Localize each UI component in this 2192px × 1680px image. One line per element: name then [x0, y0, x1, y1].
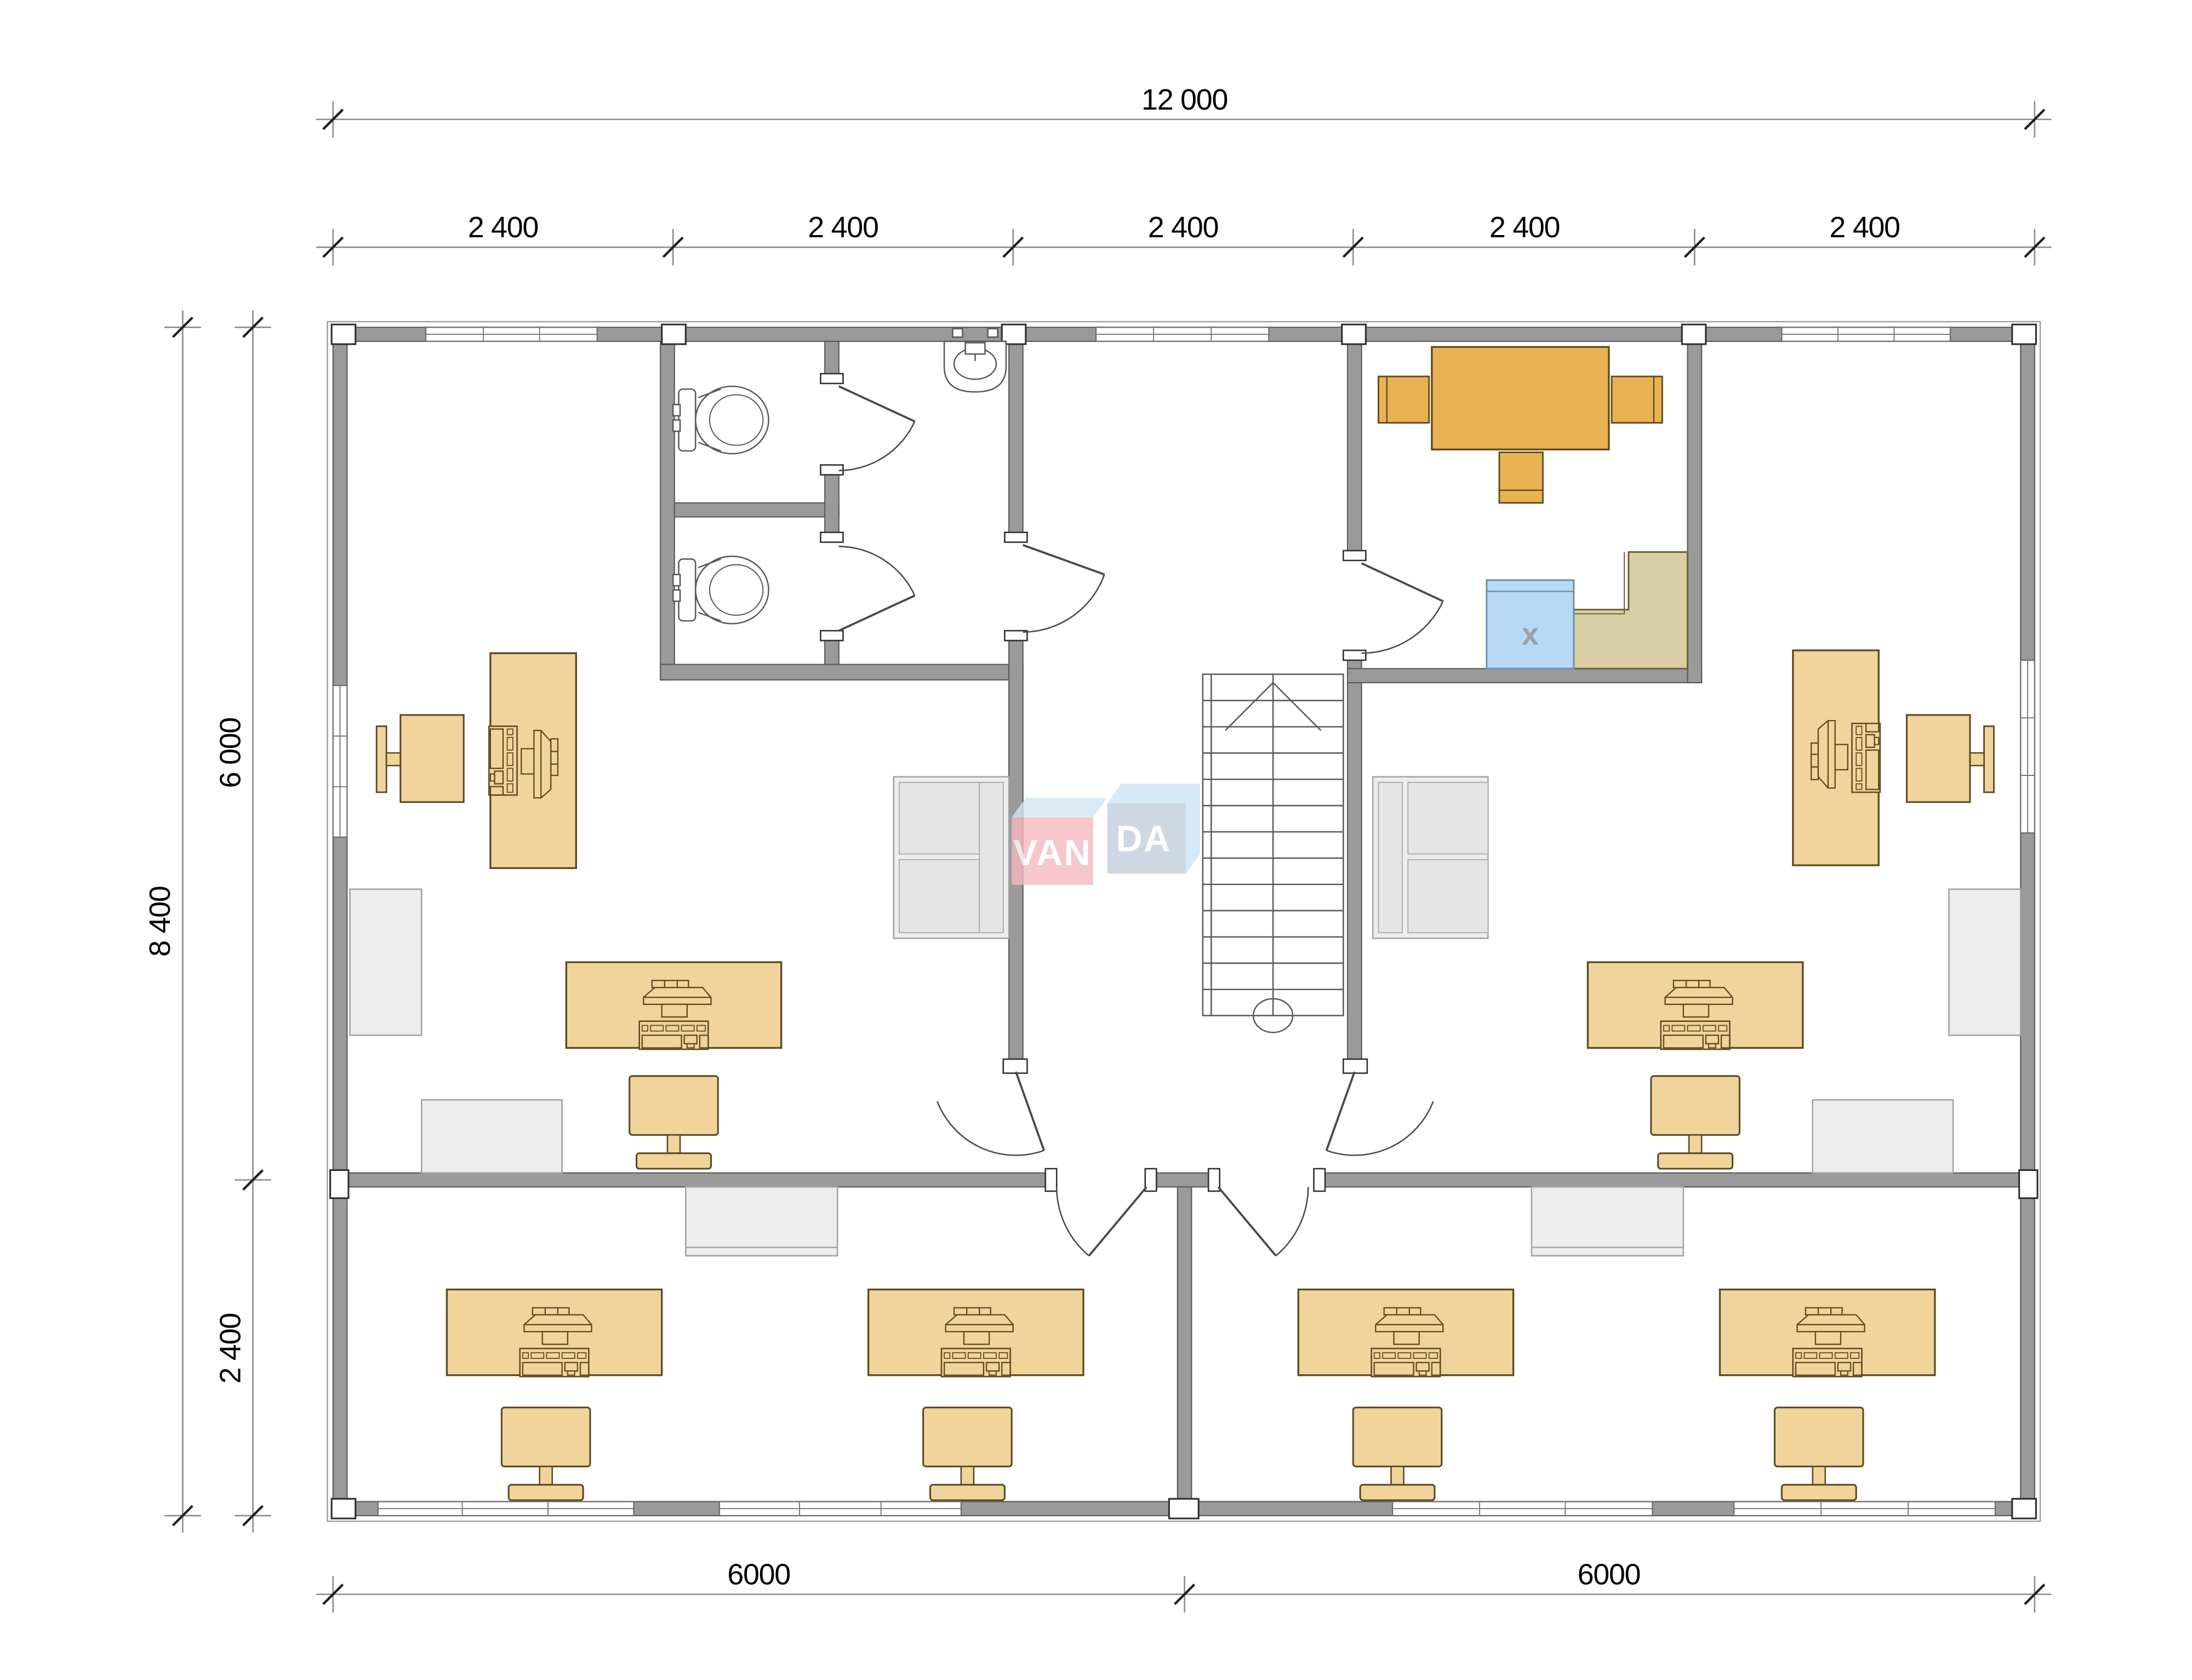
window-bottom-2: [720, 1501, 961, 1516]
desk-main-right: [1588, 962, 1802, 1049]
dim-label-bottom-left: 6000: [727, 1558, 790, 1591]
conference-table: [1432, 347, 1609, 449]
dim-label-total-width: 12 000: [1141, 83, 1228, 116]
conference-room-furniture: x: [1378, 347, 1687, 668]
floor-plan: 12 000 2 400 2 400 2 400 2 400 2 400 8 4…: [0, 0, 2192, 1680]
wall-split-right: [1315, 1173, 2020, 1187]
dim-label-bottom-right: 6000: [1578, 1558, 1641, 1591]
desk-bottom-3: [1298, 1289, 1513, 1376]
cabinet-bottom-right-room: [1532, 1187, 1683, 1256]
dimension-left-segments: 6 000 2 400: [214, 311, 271, 1533]
conference-chair-right: [1612, 376, 1662, 423]
dimension-top-total: 12 000: [316, 83, 2052, 138]
sofa-left-backrest: [979, 782, 1003, 933]
chair-main-left: [630, 1076, 718, 1169]
wall-wc-left: [660, 341, 675, 680]
chair-bottom-2: [923, 1408, 1012, 1500]
wall-wc-divider-b: [825, 469, 839, 541]
window-right: [2020, 660, 2035, 833]
window-bottom-4: [1734, 1501, 1995, 1516]
window-top-3: [1782, 327, 1950, 341]
cabinet-right-wall: [1949, 889, 2020, 1036]
logo-text-left: VAN: [1013, 833, 1092, 873]
logo-text-right: DA: [1116, 819, 1171, 860]
dim-label-bay-2: 2 400: [808, 211, 878, 244]
wall-hall-right-a: [1348, 341, 1362, 559]
dim-label-left-lower: 2 400: [214, 1313, 247, 1384]
door-wc-lower: [839, 546, 915, 631]
wall-split-left: [347, 1173, 1055, 1187]
desk-vertical-left: [489, 653, 576, 868]
chair-vertical-left: [376, 715, 464, 802]
toilet-lower-icon: [673, 556, 768, 624]
door-conference: [1362, 563, 1443, 653]
cabinet-main-left: [421, 1100, 562, 1173]
wall-hall-right-b: [1348, 655, 1362, 1072]
door-vestibule-lower-left: [1057, 1187, 1146, 1256]
window-top-2: [1096, 327, 1269, 341]
wall-conference-right: [1687, 341, 1702, 683]
window-left: [333, 685, 347, 837]
dimension-left-total: 8 400: [144, 311, 201, 1533]
desk-bottom-2: [869, 1289, 1083, 1376]
wall-split-center: [1146, 1173, 1218, 1187]
desk-bottom-4: [1720, 1289, 1934, 1376]
door-vestibule-lower-right: [1218, 1187, 1308, 1256]
window-bottom-1: [378, 1501, 634, 1516]
dim-label-left-upper: 6 000: [214, 718, 247, 788]
wall-lobby-right-a: [1009, 341, 1023, 541]
chair-main-right: [1651, 1076, 1740, 1169]
dimension-top-segments: 2 400 2 400 2 400 2 400 2 400: [316, 211, 2052, 265]
dim-label-bay-1: 2 400: [468, 211, 538, 244]
desk-bottom-1: [447, 1289, 661, 1376]
staircase: [1203, 675, 1343, 1033]
sofa-left: [894, 777, 1009, 939]
window-top-1: [426, 327, 597, 341]
watermark-logo: VAN DA: [1012, 784, 1200, 885]
conference-chair-left: [1378, 376, 1429, 423]
dim-label-bay-5: 2 400: [1829, 211, 1899, 244]
desk-vertical-right: [1793, 650, 1880, 865]
dim-label-bay-4: 2 400: [1489, 211, 1560, 244]
window-bottom-3: [1392, 1501, 1652, 1516]
toilet-upper-icon: [673, 386, 768, 454]
dim-label-bay-3: 2 400: [1148, 211, 1218, 244]
door-bathroom-lobby: [1023, 545, 1105, 632]
wall-bottom-divider: [1178, 1187, 1192, 1501]
door-wc-upper: [839, 386, 915, 471]
wall-wc-middle: [675, 503, 839, 517]
wall-conference-bottom: [1348, 668, 1702, 683]
wall-exterior-right: [2020, 327, 2035, 1516]
dim-label-total-height: 8 400: [144, 887, 176, 957]
chair-vertical-right: [1906, 715, 1994, 802]
conference-chair-bottom: [1499, 452, 1543, 502]
cabinet-left-wall: [350, 889, 421, 1036]
desk-main-left: [566, 962, 781, 1049]
door-vestibule-upper-left: [937, 1072, 1044, 1155]
door-vestibule-upper-right: [1327, 1072, 1434, 1155]
counter-l-shaped: [1574, 552, 1688, 668]
dimension-bottom: 6000 6000: [316, 1558, 2052, 1613]
chair-bottom-3: [1353, 1408, 1442, 1500]
wall-wc-bottom: [660, 665, 1023, 680]
wall-exterior-left: [333, 327, 347, 1516]
cabinet-main-right: [1813, 1100, 1953, 1173]
appliance-dishwasher: x: [1487, 580, 1574, 669]
sofa-right: [1373, 777, 1488, 939]
appliance-x-icon: x: [1522, 617, 1539, 652]
sofa-right-backrest: [1378, 782, 1402, 933]
chair-bottom-4: [1774, 1408, 1863, 1500]
cabinet-bottom-left-room: [686, 1187, 837, 1256]
chair-bottom-1: [501, 1408, 590, 1500]
